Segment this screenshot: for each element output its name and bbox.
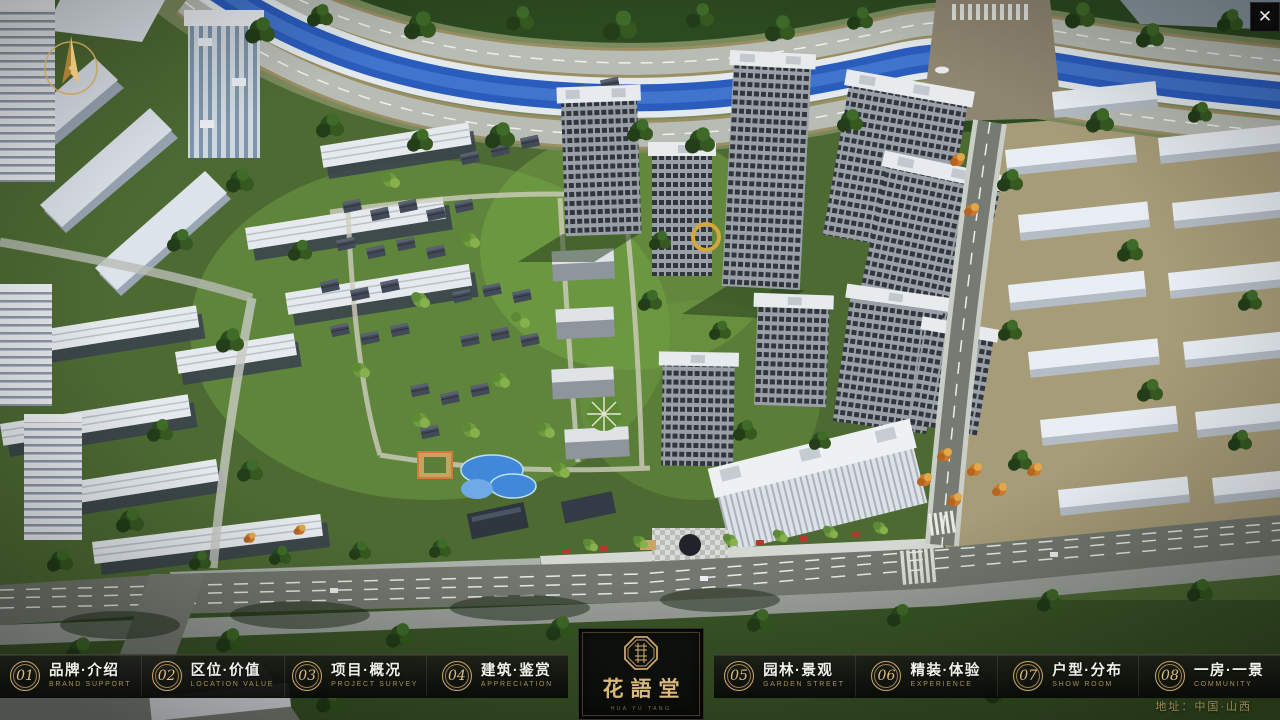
nav-badge-07: 07: [1013, 661, 1043, 691]
nav-item-floorplans[interactable]: 07 户型·分布 SHOW ROOM: [998, 655, 1140, 697]
nav-badge-03: 03: [292, 661, 322, 691]
nav-item-location[interactable]: 02 区位·价值 LOCATION VALUE: [142, 655, 284, 697]
nav-label: 建筑·鉴赏: [481, 664, 551, 679]
nav-label: 区位·价值: [191, 664, 261, 679]
nav-label: 品牌·介绍: [49, 664, 119, 679]
nav-item-architecture[interactable]: 04 建筑·鉴赏 APPRECIATION: [427, 655, 568, 697]
nav-sublabel: PROJECT SURVEY: [331, 681, 418, 688]
nav-badge-05: 05: [724, 661, 754, 691]
presentation-stage: ✕ 01 品牌·介绍 BRAND SUPPORT 02 区位·价值 LOCATI…: [0, 0, 1280, 720]
nav-sublabel: LOCATION VALUE: [191, 681, 274, 688]
close-button[interactable]: ✕: [1250, 2, 1280, 32]
nav-badge-01: 01: [10, 661, 40, 691]
nav-sublabel: BRAND SUPPORT: [49, 681, 131, 688]
nav-sublabel: EXPERIENCE: [910, 681, 972, 688]
project-address: 地址：中国·山西: [1155, 698, 1252, 714]
masterplan-canvas[interactable]: [0, 0, 1280, 720]
nav-item-views[interactable]: 08 一房·一景 COMMUNITY: [1139, 655, 1280, 697]
nav-sublabel: GARDEN STREET: [763, 681, 845, 688]
nav-sublabel: APPRECIATION: [481, 681, 553, 688]
brand-name: 花語堂: [596, 673, 687, 703]
nav-label: 精装·体验: [910, 664, 980, 679]
nav-item-landscape[interactable]: 05 园林·景观 GARDEN STREET: [714, 655, 856, 697]
nav-item-project[interactable]: 03 项目·概况 PROJECT SURVEY: [285, 655, 427, 697]
nav-sublabel: COMMUNITY: [1194, 681, 1252, 688]
nav-label: 户型·分布: [1052, 664, 1122, 679]
navbar-right: 05 园林·景观 GARDEN STREET 06 精装·体验 EXPERIEN…: [714, 654, 1280, 698]
nav-badge-08: 08: [1155, 661, 1185, 691]
nav-sublabel: SHOW ROOM: [1052, 681, 1113, 688]
nav-badge-04: 04: [442, 661, 472, 691]
nav-item-brand[interactable]: 01 品牌·介绍 BRAND SUPPORT: [0, 655, 142, 697]
nav-badge-06: 06: [871, 661, 901, 691]
brand-seal-icon: [623, 635, 659, 671]
nav-label: 一房·一景: [1194, 664, 1264, 679]
brand-tagline: HUA YU TANG: [611, 706, 672, 712]
nav-badge-02: 02: [152, 661, 182, 691]
compass-icon: [36, 30, 106, 102]
nav-label: 项目·概况: [331, 664, 401, 679]
brand-logo-panel[interactable]: 花語堂 HUA YU TANG: [578, 628, 704, 720]
nav-label: 园林·景观: [763, 664, 833, 679]
navbar-left: 01 品牌·介绍 BRAND SUPPORT 02 区位·价值 LOCATION…: [0, 654, 568, 698]
nav-item-interior[interactable]: 06 精装·体验 EXPERIENCE: [856, 655, 998, 697]
